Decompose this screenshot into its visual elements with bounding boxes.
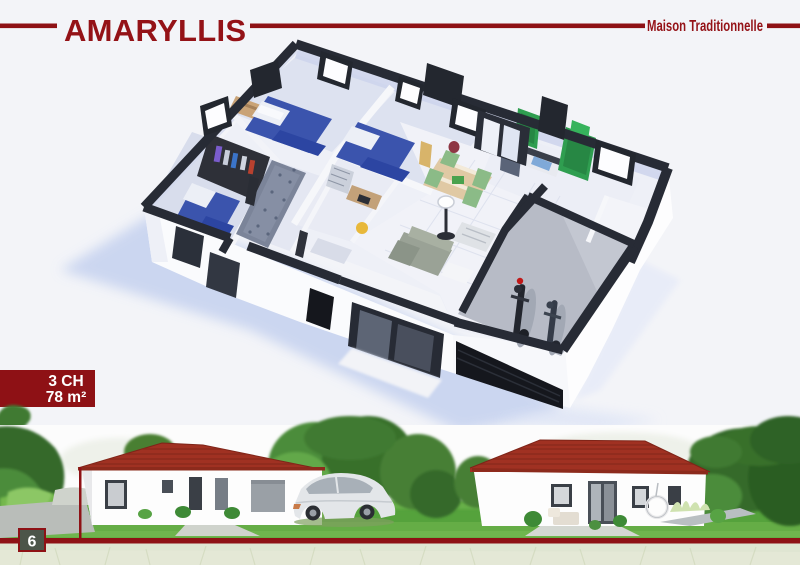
svg-text:Maison Traditionnelle: Maison Traditionnelle	[647, 18, 763, 35]
svg-text:6: 6	[28, 534, 37, 551]
svg-text:AMARYLLIS: AMARYLLIS	[64, 13, 246, 48]
svg-text:3 CH: 3 CH	[48, 373, 83, 390]
svg-text:78 m²: 78 m²	[46, 389, 87, 406]
